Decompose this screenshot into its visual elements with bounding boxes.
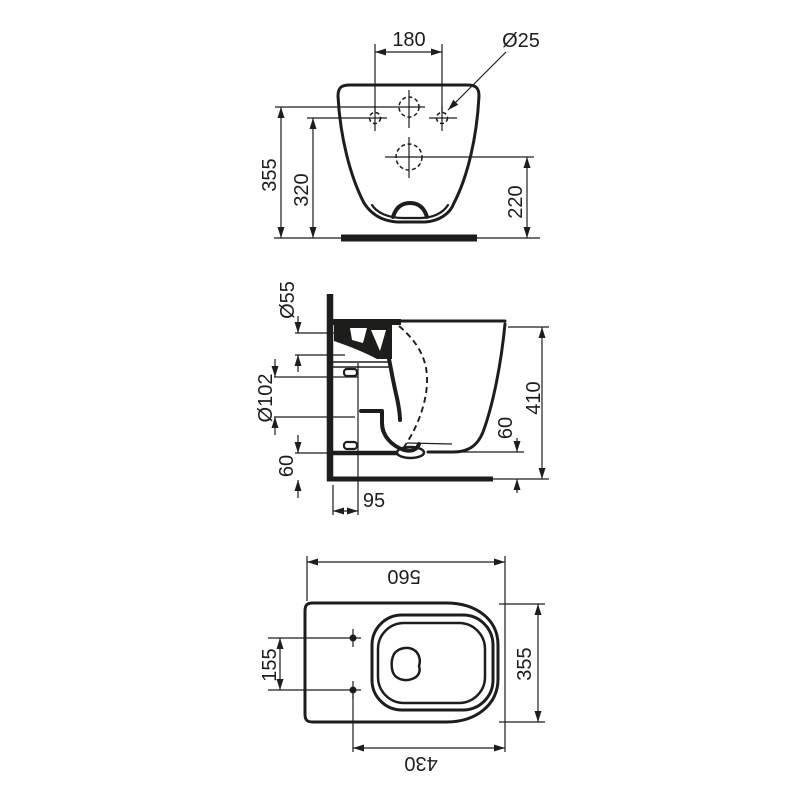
front-edge xyxy=(428,324,505,452)
drawing-page: 180 Ø25 355 320 220 xyxy=(0,0,800,800)
sump-opening xyxy=(392,648,420,680)
side-dim-outlet-diameter: Ø102 xyxy=(255,359,358,435)
dim-label: 320 xyxy=(291,173,313,206)
hidden-bowl-line xyxy=(399,326,427,447)
dim-label: Ø25 xyxy=(502,30,540,52)
seat-inner-rim xyxy=(378,623,485,703)
plan-view: 560 155 355 430 xyxy=(259,556,545,774)
rim-shadow-line xyxy=(407,443,452,444)
body-outline xyxy=(305,603,498,722)
dim-label: 95 xyxy=(363,490,385,512)
fixing-bolt-section xyxy=(344,369,357,376)
water-inlet-hole xyxy=(399,90,419,128)
front-dim-fixing-hole-diameter: Ø25 xyxy=(448,30,540,110)
dim-label: 220 xyxy=(505,185,527,218)
dim-label: 60 xyxy=(495,417,517,439)
leader-line xyxy=(448,52,506,110)
side-dim-total-height: 410 xyxy=(508,327,549,479)
outlet-dome xyxy=(393,203,427,217)
dim-label: Ø55 xyxy=(277,281,299,319)
fixing-hole-right xyxy=(429,106,457,131)
dim-label: 355 xyxy=(259,158,281,191)
side-dim-outlet-wall-distance: 95 xyxy=(333,363,385,515)
dim-label: Ø102 xyxy=(255,374,277,423)
technical-drawing: 180 Ø25 355 320 220 xyxy=(0,0,800,800)
side-view: Ø55 Ø102 60 95 410 xyxy=(255,281,549,515)
wc-side-outline xyxy=(333,319,505,458)
bowl-section-wall xyxy=(389,359,400,420)
plan-dim-front-to-fixing: 430 xyxy=(353,694,505,774)
front-dim-fixing-height: 320 xyxy=(291,118,387,238)
wc-plan-outline xyxy=(305,603,498,722)
side-dim-rim-floor-clearance: 60 xyxy=(455,417,524,493)
dim-label: 430 xyxy=(404,752,437,774)
side-dim-clearance-left: 60 xyxy=(276,435,333,498)
dim-label: 60 xyxy=(276,455,298,477)
dim-label: 410 xyxy=(523,381,545,414)
dim-label: 180 xyxy=(392,29,425,51)
fixing-bolt-section xyxy=(344,442,357,449)
plan-dim-fixing-hole-spacing: 155 xyxy=(259,638,361,690)
bowl-rim-line xyxy=(372,205,448,218)
dim-label: 560 xyxy=(387,565,420,587)
dim-label: 355 xyxy=(514,647,536,680)
front-view: 180 Ø25 355 320 220 xyxy=(259,29,540,238)
dim-label: 155 xyxy=(259,648,281,681)
sump-section xyxy=(361,411,419,451)
plan-dim-overall-width: 355 xyxy=(499,604,545,722)
